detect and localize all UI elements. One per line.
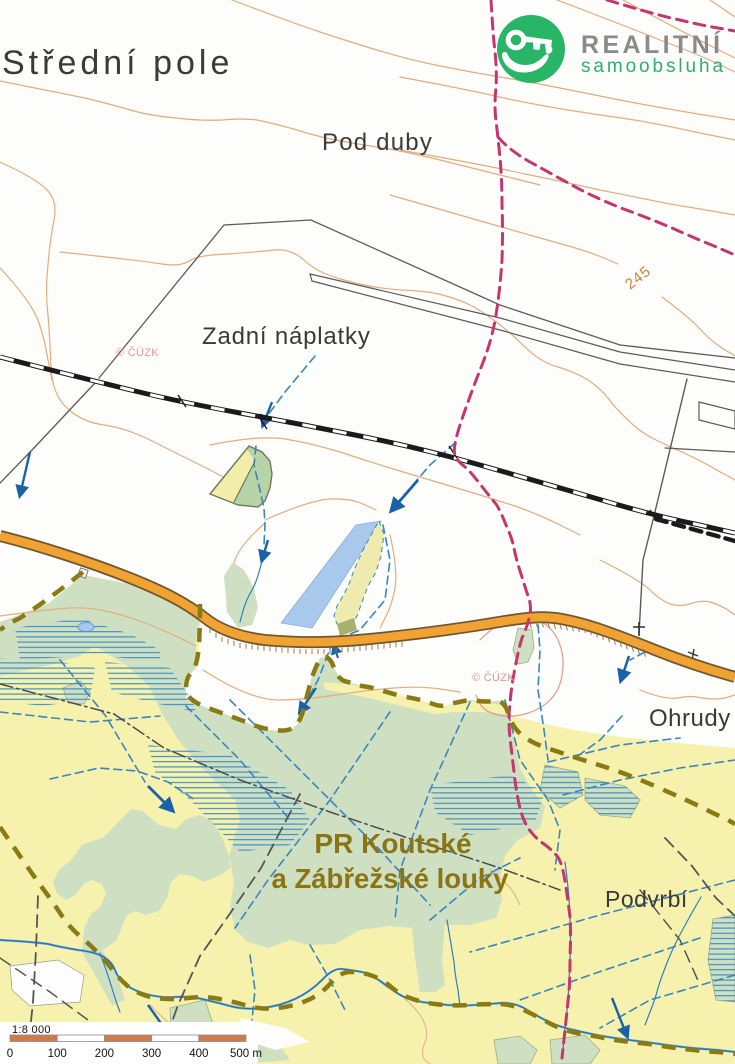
svg-text:1:8 000: 1:8 000	[12, 1024, 51, 1036]
svg-text:© ČÚZK: © ČÚZK	[472, 671, 515, 684]
svg-text:200: 200	[95, 1048, 114, 1060]
svg-text:REALITNÍ: REALITNÍ	[581, 30, 723, 59]
svg-text:Podvrbí: Podvrbí	[605, 886, 688, 912]
svg-text:Zadní náplatky: Zadní náplatky	[202, 323, 371, 350]
svg-text:400: 400	[189, 1048, 208, 1060]
svg-text:a Zábřežské louky: a Zábřežské louky	[272, 863, 510, 894]
svg-text:500 m: 500 m	[230, 1048, 262, 1060]
svg-text:© ČÚZK: © ČÚZK	[116, 346, 159, 359]
svg-text:Ohrudy: Ohrudy	[649, 705, 731, 732]
svg-text:0: 0	[7, 1048, 13, 1060]
svg-text:Pod duby: Pod duby	[322, 129, 433, 156]
svg-text:300: 300	[142, 1048, 161, 1060]
svg-text:100: 100	[48, 1048, 67, 1060]
svg-text:samoobsluha: samoobsluha	[581, 56, 726, 77]
svg-text:Střední pole: Střední pole	[2, 44, 233, 82]
svg-text:PR Koutské: PR Koutské	[314, 828, 471, 859]
